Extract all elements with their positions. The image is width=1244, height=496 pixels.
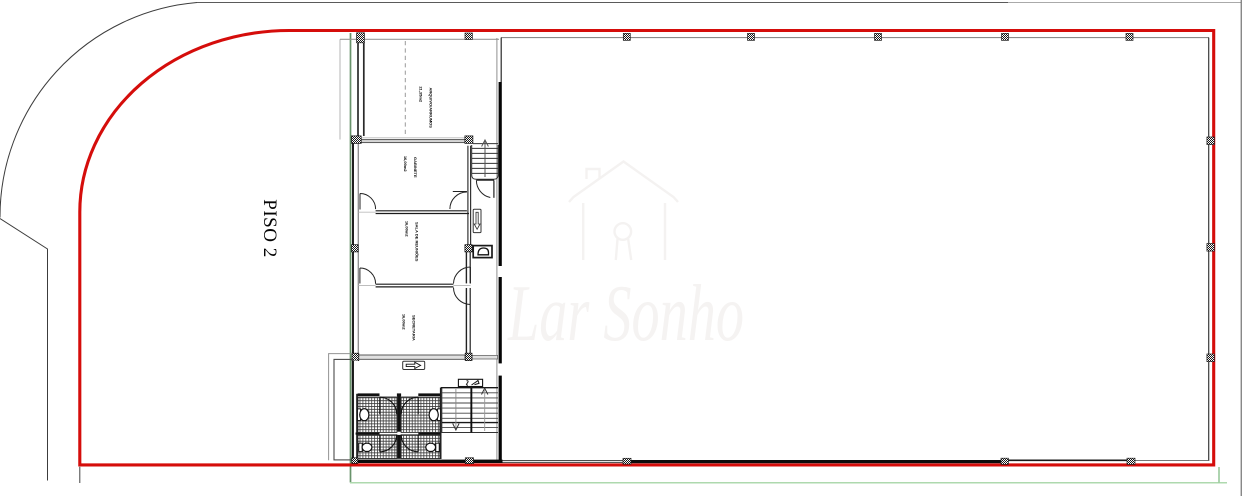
svg-text:21,35m2: 21,35m2	[418, 86, 423, 103]
svg-text:16,00m2: 16,00m2	[403, 156, 408, 173]
svg-text:SECRETARIA: SECRETARIA	[412, 315, 417, 341]
svg-text:Lar Sonho: Lar Sonho	[507, 270, 744, 358]
svg-text:16,00m2: 16,00m2	[405, 221, 410, 238]
svg-text:GABINETE: GABINETE	[413, 157, 418, 178]
svg-text:ARQUIVO/ARRUMOS: ARQUIVO/ARRUMOS	[428, 88, 433, 129]
svg-text:16,00m2: 16,00m2	[402, 314, 407, 331]
svg-text:SALA DE REUNIÕES: SALA DE REUNIÕES	[415, 222, 420, 262]
svg-text:PISO 2: PISO 2	[259, 199, 280, 257]
